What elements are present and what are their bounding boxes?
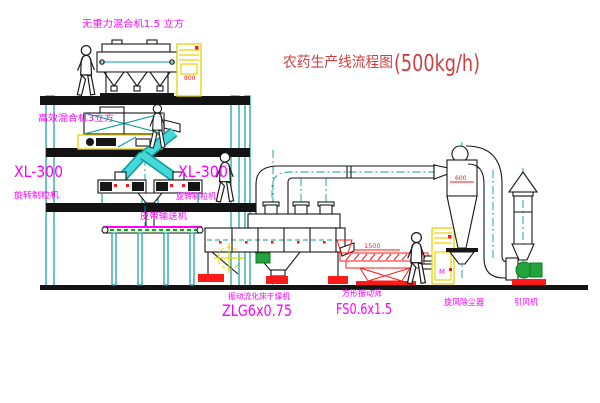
dryer-support-pad-mid bbox=[266, 276, 288, 284]
control-cabinet-floor: M bbox=[432, 228, 454, 284]
floor-slab-low bbox=[46, 203, 256, 212]
cabinet-floor-mark: M bbox=[439, 268, 445, 276]
fan-motor bbox=[530, 263, 542, 277]
rain-cap bbox=[509, 172, 537, 192]
dryer-support-pad-left bbox=[198, 274, 224, 282]
label-gravity-mixer: 无重力混合机1.5 立方 bbox=[82, 18, 184, 30]
person-figure-ground bbox=[407, 233, 425, 284]
fluid-bed-dryer-machine bbox=[198, 202, 354, 284]
ground-line bbox=[40, 285, 588, 290]
page-title: 农药生产线流程图 bbox=[283, 54, 393, 71]
person-figure-top-floor bbox=[77, 46, 94, 96]
label-belt-conveyor: 皮带输送机 bbox=[140, 210, 187, 222]
sieve-dim-width: 1500 bbox=[364, 242, 381, 250]
fan-base bbox=[512, 279, 546, 285]
floor-slab-top bbox=[40, 96, 250, 105]
induced-draft-fan-machine bbox=[506, 258, 546, 285]
label-granulator-right-model: XL-300 bbox=[178, 162, 228, 181]
page-title-capacity: (500kg/h) bbox=[394, 51, 480, 77]
dryer-support-pad-right bbox=[328, 276, 348, 284]
indicator-lamp bbox=[448, 235, 452, 239]
label-cyclone: 旋风除尘器 bbox=[444, 297, 484, 308]
label-granulator-left-model: XL-300 bbox=[14, 162, 63, 181]
exhaust-duct bbox=[256, 164, 448, 216]
label-sieve-name: 方形振动筛 bbox=[342, 288, 382, 299]
label-fan: 引风机 bbox=[514, 297, 538, 308]
belt-conveyor-machine bbox=[102, 227, 203, 285]
label-dryer-name: 振动流化床干燥机 bbox=[228, 291, 290, 301]
label-sieve-model: FS0.6x1.5 bbox=[336, 300, 392, 318]
label-granulator-right-name: 旋转制粒机 bbox=[176, 191, 216, 202]
cad-flow-diagram-page: 800 bbox=[0, 0, 600, 403]
label-high-mixer: 高效混合机3立方 bbox=[38, 112, 114, 124]
control-cabinet-top: 800 bbox=[177, 44, 201, 96]
label-granulator-left-name: 旋转制粒机 bbox=[14, 190, 60, 201]
label-dryer-model: ZLG6x0.75 bbox=[222, 301, 292, 320]
indicator-lamp bbox=[195, 46, 199, 50]
granulator-left-machine bbox=[98, 172, 146, 203]
cyclone-dim: 600 bbox=[455, 175, 467, 182]
flow-diagram-canvas: 800 bbox=[0, 0, 600, 403]
cabinet-top-mark: 800 bbox=[184, 75, 196, 82]
gravity-mixer bbox=[97, 40, 177, 96]
rotary-valve bbox=[256, 253, 270, 263]
